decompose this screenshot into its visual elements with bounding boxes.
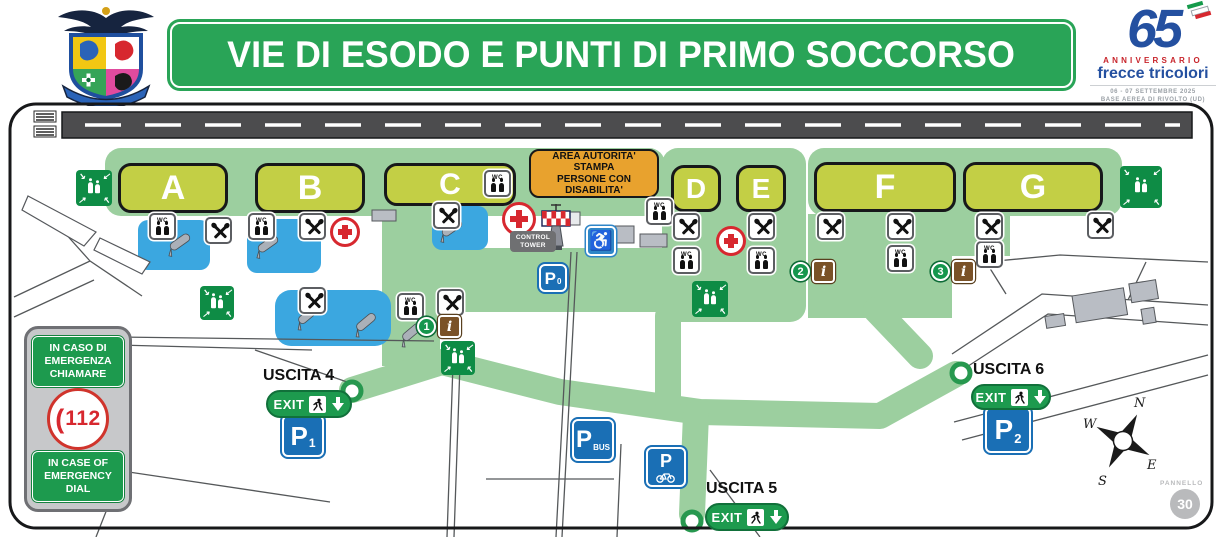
- restaurant-icon: [673, 213, 700, 240]
- assembly-point-icon: [76, 170, 112, 206]
- restaurant-icon: [887, 213, 914, 240]
- restaurant-icon: [433, 202, 460, 229]
- authority-area-box: AREA AUTORITA' STAMPA PERSONE CON DISABI…: [529, 149, 659, 198]
- parking-p0-sign: P0: [539, 264, 567, 292]
- emergency-number: 112: [65, 407, 100, 431]
- parking-p2-sign: P2: [985, 407, 1031, 453]
- down-arrow-icon: [769, 510, 782, 525]
- down-arrow-icon: [1033, 390, 1046, 405]
- running-man-icon: [1011, 389, 1028, 406]
- exit-5-sign: EXIT: [705, 503, 789, 531]
- restaurant-icon: [976, 213, 1003, 240]
- wc-icon: WC: [673, 247, 700, 274]
- parking-p1-sign: P1: [282, 415, 324, 457]
- zone-b: B: [255, 163, 365, 213]
- emergency-text-en: IN CASE OFEMERGENCYDIAL: [32, 451, 124, 502]
- exit-6-label: USCITA 6: [973, 361, 1044, 379]
- parking-bicycle-sign: P: [646, 447, 686, 487]
- wc-icon: WC: [887, 245, 914, 272]
- restaurant-icon: [299, 213, 326, 240]
- emergency-text-it: IN CASO DIEMERGENZACHIAMARE: [32, 336, 124, 387]
- phone-icon: [55, 406, 64, 433]
- assembly-point-icon: [200, 286, 234, 320]
- compass-north: N: [1134, 396, 1145, 411]
- compass-west: W: [1083, 417, 1096, 432]
- restaurant-icon: [748, 213, 775, 240]
- down-arrow-icon: [331, 397, 344, 412]
- runway: [34, 111, 1192, 138]
- emergency-number-badge: 112: [47, 388, 109, 450]
- exit-4-label: USCITA 4: [263, 367, 334, 385]
- restaurant-icon: [299, 287, 326, 314]
- wc-icon: WC: [248, 213, 275, 240]
- wc-icon: WC: [484, 170, 511, 197]
- exit-4-sign: EXIT: [266, 390, 352, 418]
- panel-label: PANNELLO: [1160, 480, 1203, 487]
- assembly-point-icon: [441, 341, 475, 375]
- emergency-panel: IN CASO DIEMERGENZACHIAMARE 112 IN CASE …: [24, 326, 132, 512]
- zone-f: F: [814, 162, 956, 212]
- zone-g: G: [963, 162, 1103, 212]
- compass-east: E: [1147, 458, 1157, 473]
- first-aid-icon: [716, 226, 746, 256]
- info-point-icon: i: [812, 260, 835, 283]
- assembly-point-icon: [692, 281, 728, 317]
- wc-icon: WC: [397, 293, 424, 320]
- exit-5-label: USCITA 5: [706, 480, 777, 498]
- zone-a: A: [118, 163, 228, 213]
- route-marker-1: 1: [417, 317, 436, 336]
- restaurant-icon: [1087, 212, 1114, 239]
- control-tower-label: CONTROL TOWER: [510, 231, 556, 252]
- disabled-access-icon: [586, 226, 616, 256]
- parking-bus-sign: PBUS: [572, 419, 614, 461]
- running-man-icon: [309, 396, 326, 413]
- evacuation-map-panel: VIE DI ESODO E PUNTI DI PRIMO SOCCORSO 6…: [0, 0, 1221, 537]
- route-marker-2: 2: [791, 262, 810, 281]
- bicycle-icon: [656, 471, 676, 483]
- restaurant-icon: [817, 213, 844, 240]
- compass-south: S: [1098, 474, 1107, 489]
- info-point-icon: i: [952, 260, 975, 283]
- wc-icon: WC: [976, 241, 1003, 268]
- zone-d: D: [671, 165, 721, 212]
- wc-icon: WC: [149, 213, 176, 240]
- exit-6-sign: EXIT: [971, 384, 1051, 410]
- first-aid-icon: [330, 217, 360, 247]
- restaurant-icon: [205, 217, 232, 244]
- route-marker-3: 3: [931, 262, 950, 281]
- info-point-icon: i: [438, 315, 461, 338]
- zone-e: E: [736, 165, 786, 212]
- restaurant-icon: [437, 289, 464, 316]
- wc-icon: WC: [748, 247, 775, 274]
- running-man-icon: [747, 509, 764, 526]
- assembly-point-icon: [1120, 166, 1162, 208]
- panel-number-badge: 30: [1170, 489, 1200, 519]
- wc-icon: WC: [646, 198, 673, 225]
